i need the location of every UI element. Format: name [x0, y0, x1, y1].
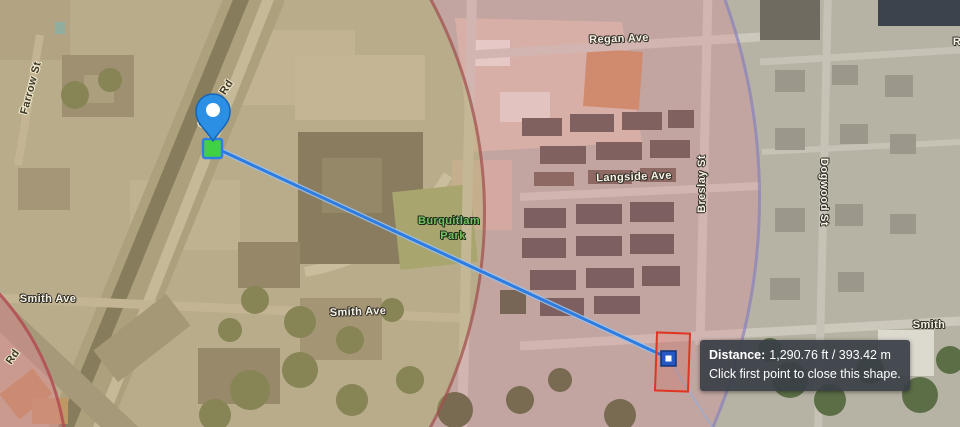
tooltip-instruction: Click first point to close this shape.: [709, 365, 901, 384]
tooltip-distance-value: 1,290.76 ft / 393.42 m: [769, 348, 891, 362]
tooltip-distance-line: Distance:1,290.76 ft / 393.42 m: [709, 346, 901, 365]
tooltip-distance-label: Distance:: [709, 348, 765, 362]
map-canvas[interactable]: Farrow St Clarke Rd Regan Ave Langside A…: [0, 0, 960, 427]
distance-tooltip: Distance:1,290.76 ft / 393.42 m Click fi…: [700, 340, 910, 391]
